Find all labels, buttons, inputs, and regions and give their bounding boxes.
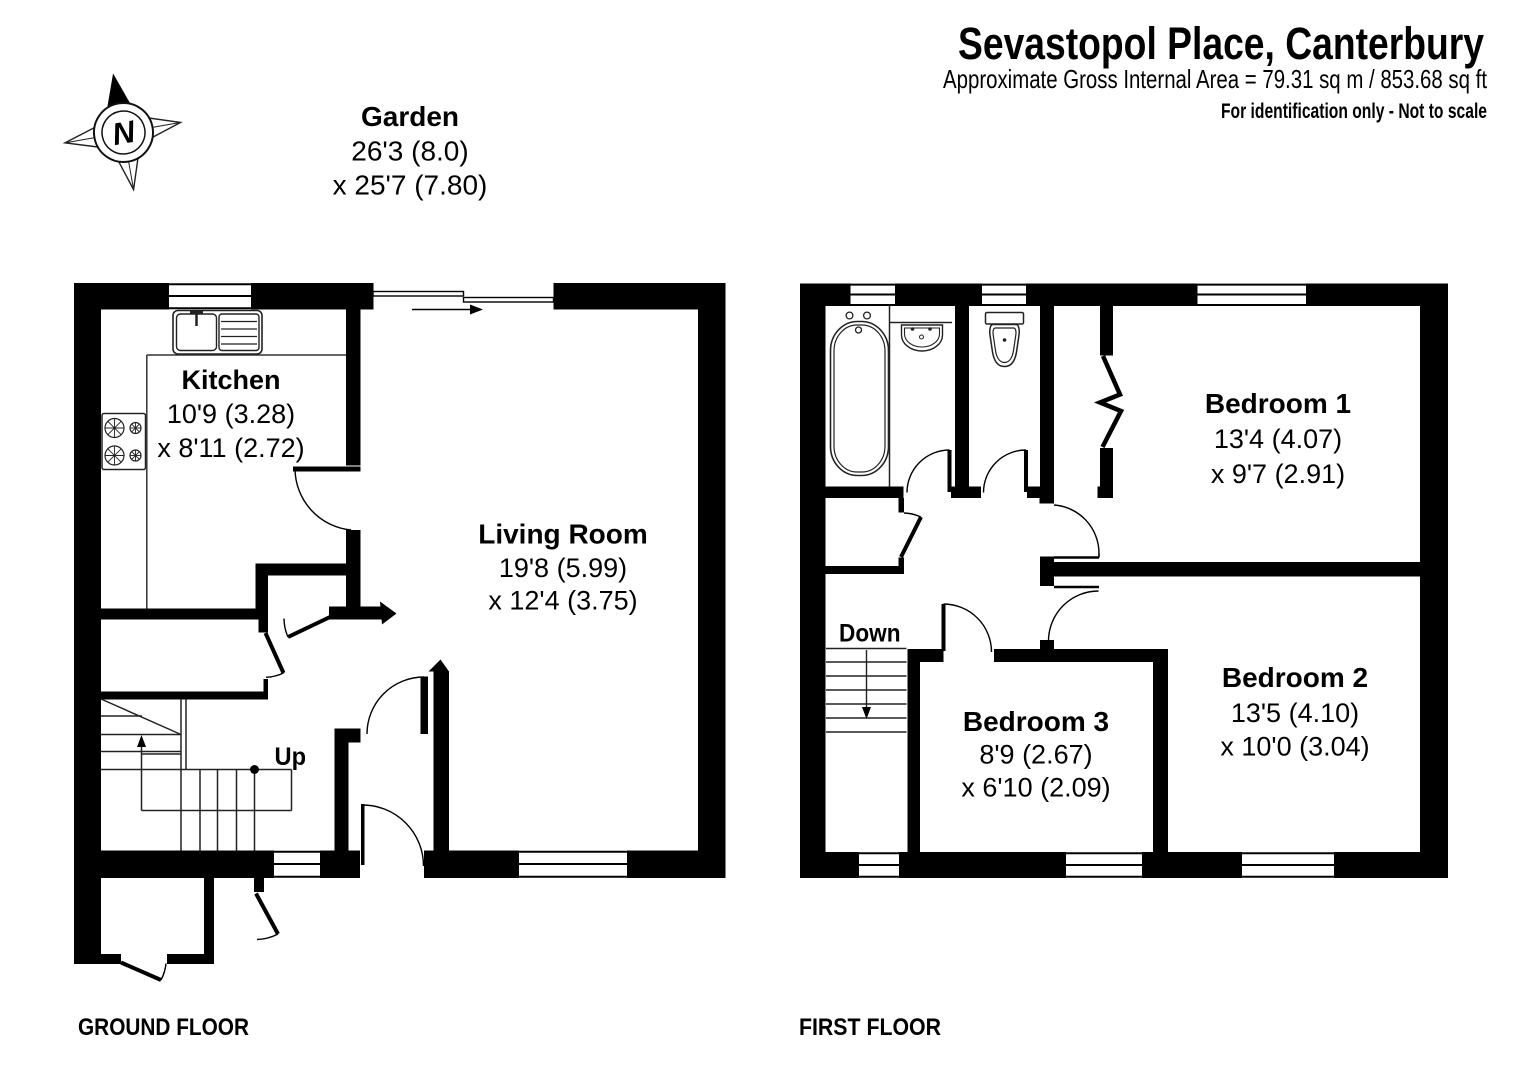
svg-text:x 25'7 (7.80): x 25'7 (7.80) (333, 170, 488, 201)
svg-text:x 9'7 (2.91): x 9'7 (2.91) (1211, 459, 1345, 489)
svg-text:GROUND FLOOR: GROUND FLOOR (78, 1014, 249, 1041)
svg-text:FIRST FLOOR: FIRST FLOOR (799, 1014, 941, 1041)
svg-text:13'4 (4.07): 13'4 (4.07) (1214, 424, 1342, 454)
svg-text:19'8 (5.99): 19'8 (5.99) (499, 553, 627, 583)
svg-text:Kitchen: Kitchen (181, 365, 280, 395)
svg-text:26'3 (8.0): 26'3 (8.0) (351, 136, 468, 167)
svg-text:8'9 (2.67): 8'9 (2.67) (979, 740, 1092, 770)
svg-text:10'9 (3.28): 10'9 (3.28) (167, 399, 295, 429)
svg-text:x 8'11 (2.72): x 8'11 (2.72) (157, 433, 304, 463)
svg-text:Up: Up (275, 743, 307, 771)
svg-text:13'5 (4.10): 13'5 (4.10) (1231, 698, 1359, 728)
svg-text:Sevastopol Place, Canterbury: Sevastopol Place, Canterbury (958, 18, 1484, 69)
svg-text:Bedroom 1: Bedroom 1 (1205, 388, 1351, 419)
svg-text:x 10'0 (3.04): x 10'0 (3.04) (1220, 732, 1369, 762)
svg-text:Living Room: Living Room (478, 519, 648, 550)
svg-text:x 12'4 (3.75): x 12'4 (3.75) (488, 586, 637, 616)
svg-text:Bedroom 2: Bedroom 2 (1222, 662, 1368, 693)
svg-text:Bedroom 3: Bedroom 3 (963, 706, 1109, 737)
svg-text:Garden: Garden (361, 101, 459, 132)
svg-text:For identification only - Not: For identification only - Not to scale (1221, 99, 1487, 123)
svg-text:Approximate Gross Internal Are: Approximate Gross Internal Area = 79.31 … (943, 64, 1488, 94)
svg-text:x 6'10 (2.09): x 6'10 (2.09) (961, 773, 1110, 803)
svg-text:Down: Down (839, 620, 901, 648)
